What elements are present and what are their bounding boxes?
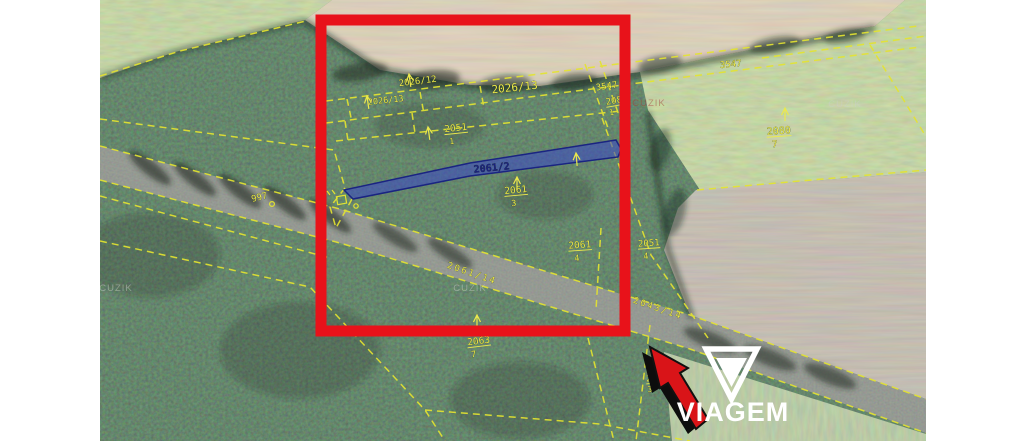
cuzik-watermark: CUZIK xyxy=(453,283,487,294)
listing-map-image: 2026/122026/132026/133547354720801208072… xyxy=(0,0,1024,447)
parcel-label: 2061 xyxy=(504,184,528,197)
parcel-label: 2061 xyxy=(568,239,592,252)
svg-text:4: 4 xyxy=(643,252,649,262)
parcel-label: 4 xyxy=(643,252,649,262)
parcel-label: 2051 xyxy=(637,238,660,250)
svg-text:7: 7 xyxy=(772,140,778,150)
satellite-imagery xyxy=(80,0,926,441)
cuzik-watermark: CUZIK xyxy=(828,99,862,110)
svg-text:3547: 3547 xyxy=(720,59,742,71)
parcel-label: 7 xyxy=(772,140,778,150)
cuzik-watermark: CUZIK xyxy=(632,98,666,109)
svg-text:4: 4 xyxy=(574,254,580,264)
svg-text:3: 3 xyxy=(511,199,517,209)
brand-name: VIAGEM xyxy=(677,397,790,427)
cuzik-watermark: CUZIK xyxy=(99,283,133,294)
parcel-label: 3547 xyxy=(720,59,742,71)
parcel-label: 4 xyxy=(574,254,580,264)
parcel-label: 2080 xyxy=(766,125,792,138)
parcel-label: 3 xyxy=(511,199,517,209)
